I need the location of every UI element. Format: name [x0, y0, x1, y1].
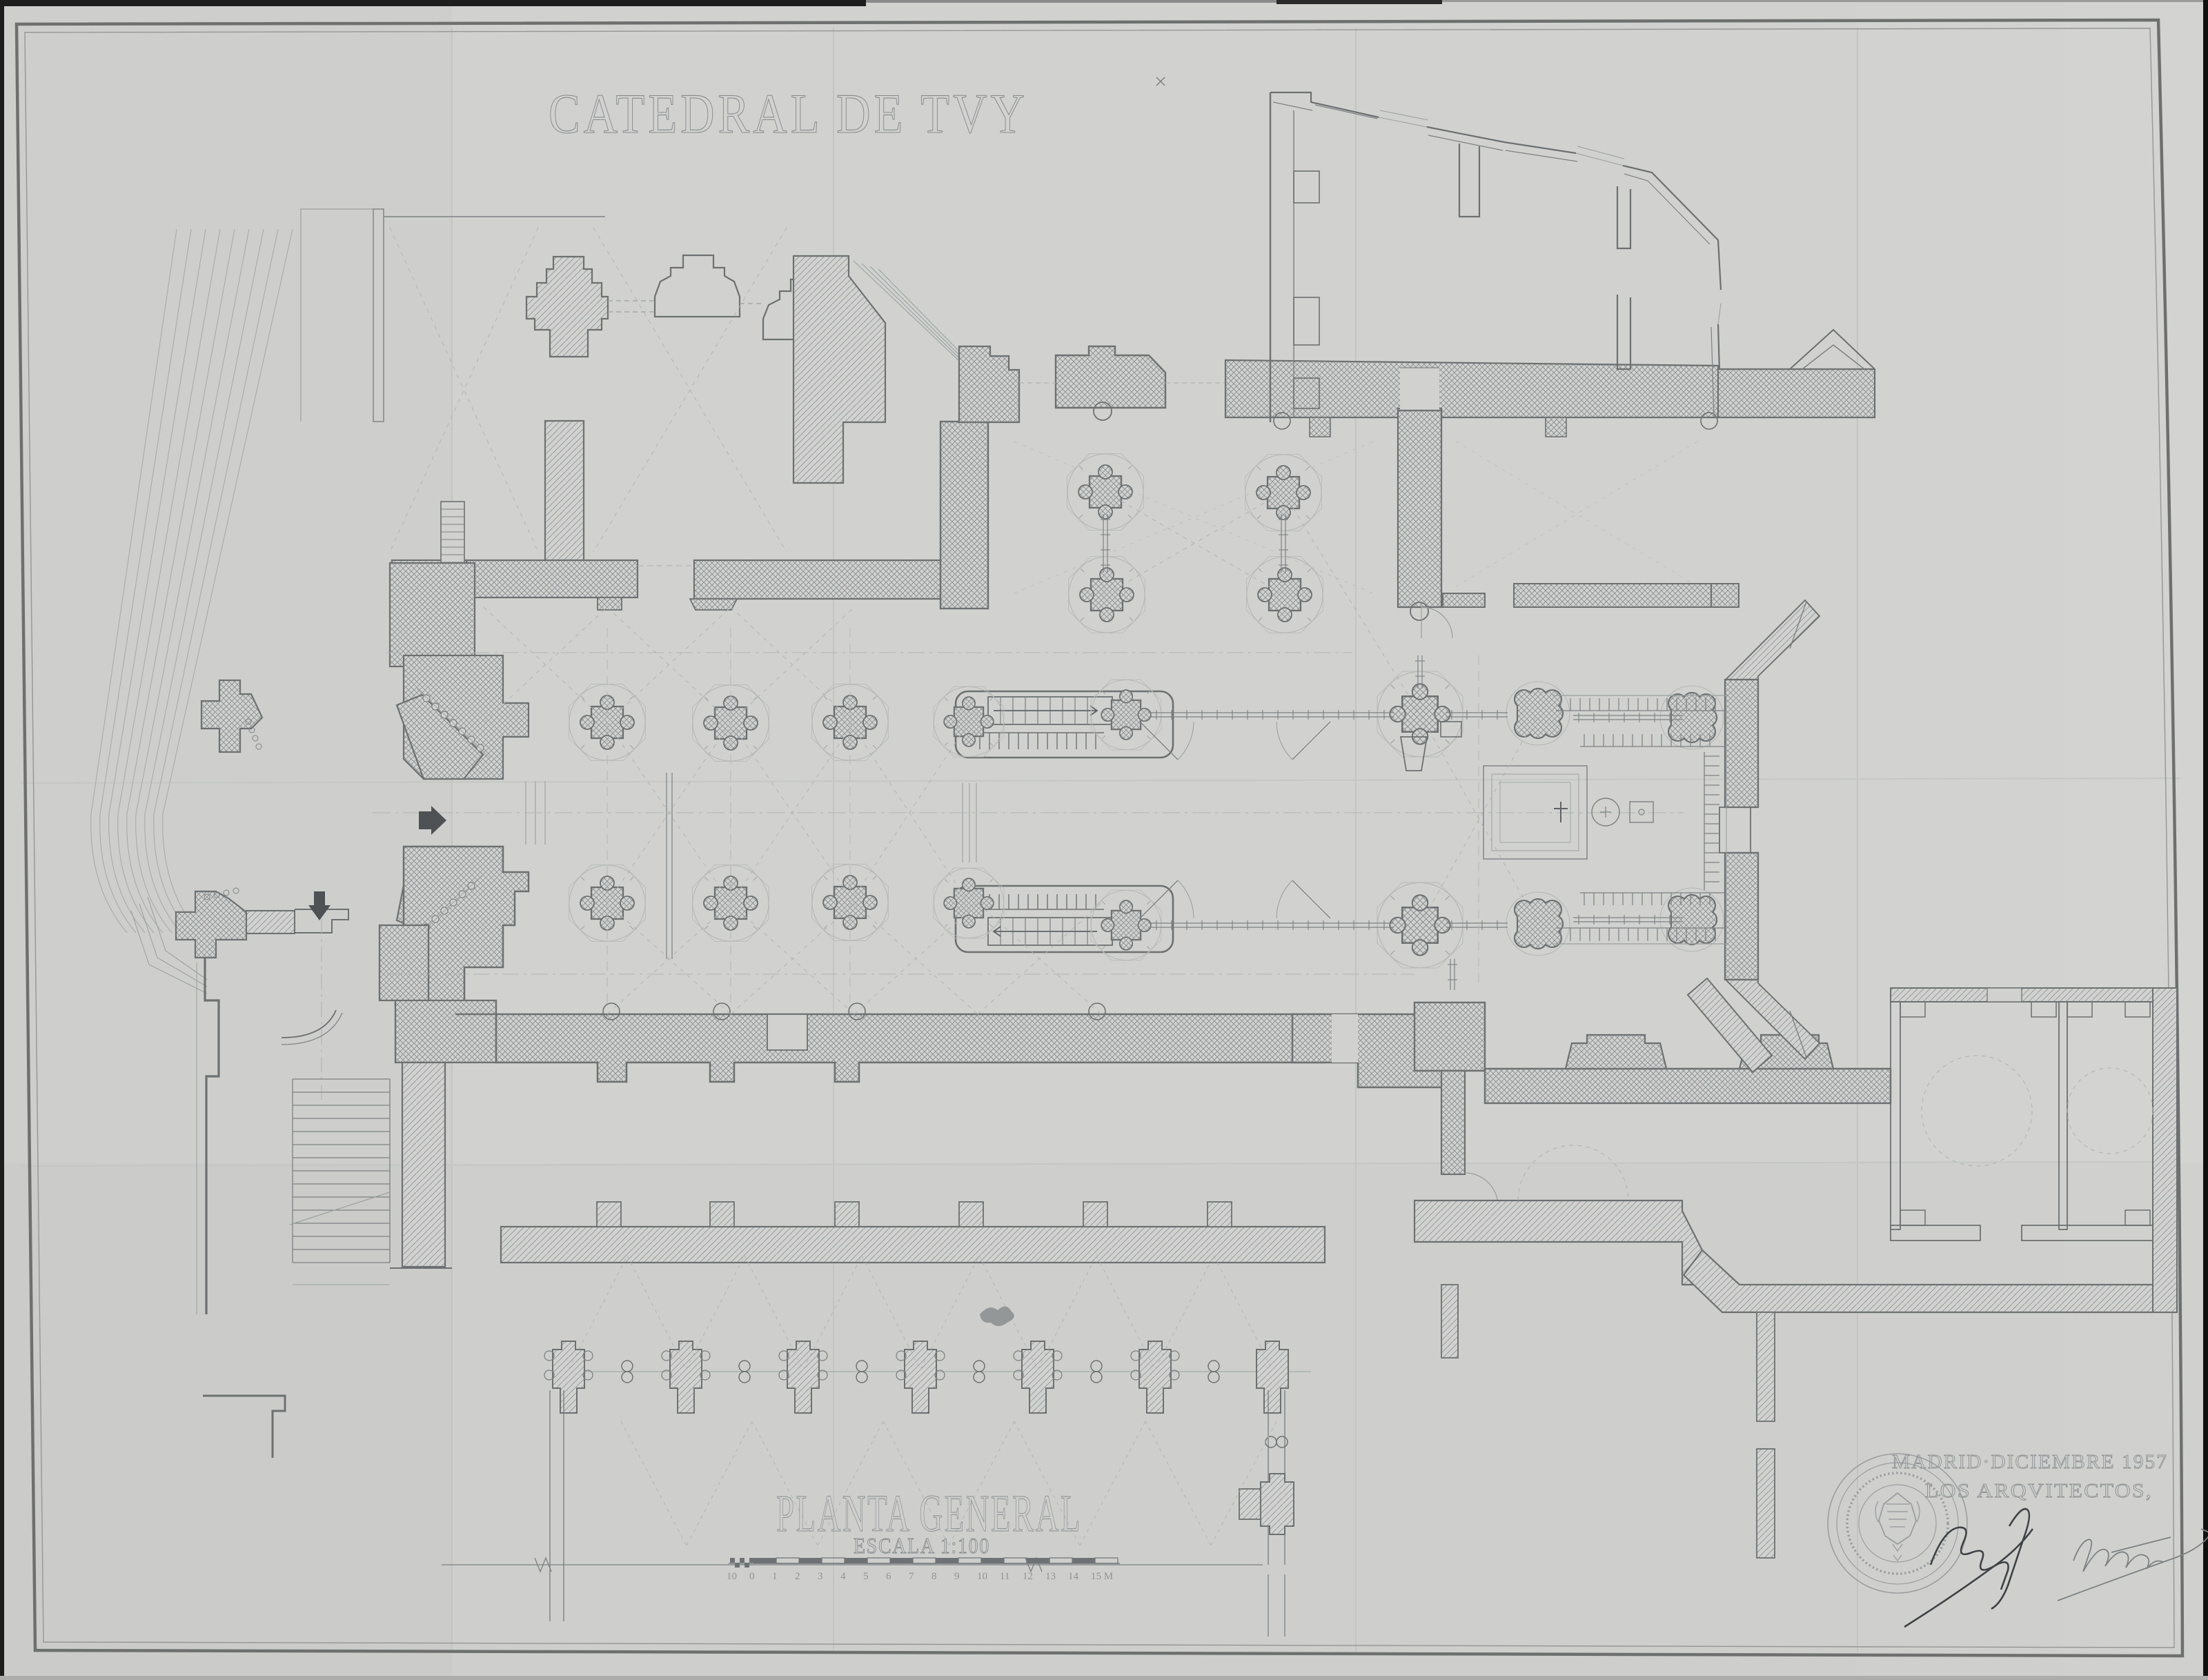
- svg-text:12: 12: [1023, 1571, 1033, 1582]
- svg-text:2: 2: [795, 1571, 800, 1582]
- svg-text:6: 6: [886, 1571, 891, 1582]
- svg-text:11: 11: [1000, 1571, 1009, 1582]
- svg-text:9: 9: [954, 1571, 960, 1582]
- svg-text:1: 1: [772, 1571, 778, 1582]
- svg-text:10: 10: [727, 1571, 737, 1582]
- svg-text:LOS ARQVITECTOS,: LOS ARQVITECTOS,: [1925, 1481, 2153, 1502]
- svg-text:ESCALA 1:100: ESCALA 1:100: [854, 1533, 990, 1558]
- svg-text:8: 8: [931, 1571, 937, 1582]
- svg-text:7: 7: [909, 1571, 914, 1582]
- svg-text:4: 4: [840, 1571, 846, 1582]
- svg-text:5: 5: [863, 1571, 869, 1582]
- svg-text:0: 0: [749, 1571, 755, 1582]
- svg-text:MADRID·DICIEMBRE 1957: MADRID·DICIEMBRE 1957: [1892, 1452, 2168, 1473]
- svg-text:14: 14: [1068, 1571, 1079, 1582]
- svg-text:CATEDRAL DE TVY: CATEDRAL DE TVY: [549, 82, 1028, 145]
- svg-text:15 M: 15 M: [1091, 1571, 1113, 1582]
- svg-text:10: 10: [977, 1571, 987, 1582]
- svg-text:3: 3: [818, 1571, 823, 1582]
- svg-text:13: 13: [1045, 1571, 1056, 1582]
